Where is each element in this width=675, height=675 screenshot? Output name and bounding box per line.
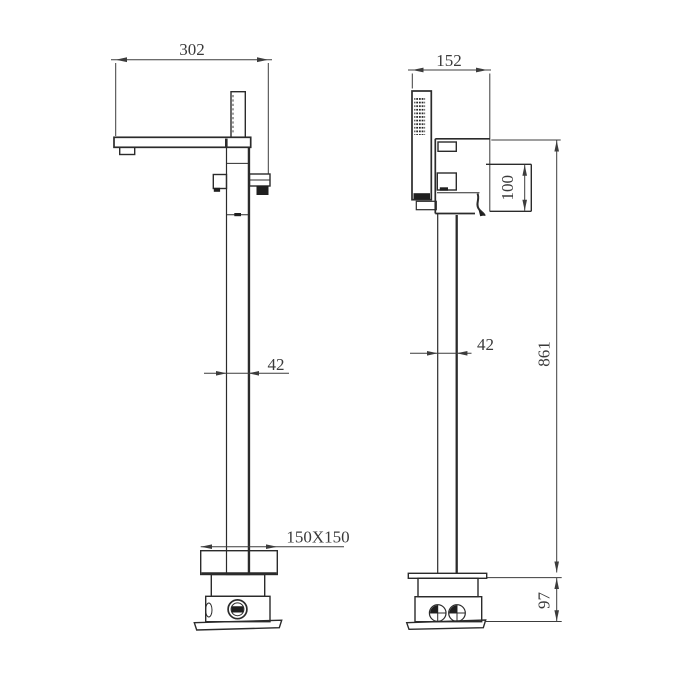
dim-152-arrow-left: [412, 68, 423, 73]
dim-label-spout-reach: 302: [179, 40, 205, 59]
front-view: 302 42 150X150: [111, 40, 350, 630]
dim-150-arrow-left: [201, 544, 212, 549]
dim-label-column-width-side: 42: [477, 335, 494, 354]
dim-861-arrow-top: [554, 141, 559, 152]
base-block-side: [418, 578, 478, 596]
diverter-button: [438, 142, 456, 151]
dim-150-arrow-right: [266, 544, 277, 549]
column-front: [227, 147, 250, 574]
handle-bracket: [213, 175, 226, 189]
handshower-grip-end: [414, 193, 431, 199]
dim-100-arrow-top: [522, 165, 527, 176]
spout-nozzle: [120, 147, 135, 154]
dim-label-base-plate: 150X150: [286, 528, 349, 547]
cover-plate-side: [408, 573, 486, 578]
handle-bracket-foot: [214, 188, 220, 192]
dim-42s-arrow-right: [457, 351, 468, 356]
base-housing-side: [415, 597, 482, 622]
handshower-holder-bracket: [416, 201, 436, 209]
dim-label-body-depth: 152: [436, 51, 462, 70]
technical-drawing-sheet: 302 42 150X150: [0, 0, 675, 675]
spout-bar: [114, 137, 251, 147]
escutcheon-box: [201, 551, 278, 575]
dim-152-arrow-right: [476, 68, 487, 73]
dim-42f-arrow-left: [216, 371, 227, 376]
dim-42s-arrow-left: [427, 351, 438, 356]
side-view: 152 100 42: [407, 51, 562, 629]
inlet-screw-left-sector: [430, 605, 438, 613]
base-block-front: [211, 575, 264, 597]
inlet-screw-right-sector: [449, 605, 457, 613]
faucet-dimension-drawing: 302 42 150X150: [0, 0, 675, 675]
dim-302-arrow-right: [257, 57, 268, 62]
dim-label-base-height: 97: [535, 592, 554, 610]
hose-outlet-knob: [257, 186, 269, 196]
dim-97-arrow-bottom: [554, 610, 559, 621]
dim-label-valve-height: 100: [498, 175, 517, 201]
housing-slot: [232, 606, 244, 612]
temperature-knob-tick: [440, 187, 448, 190]
dim-97-arrow-top: [554, 578, 559, 589]
column-joint-tick: [234, 213, 241, 216]
dim-100-arrow-bottom: [522, 200, 527, 211]
dim-label-column-width-front: 42: [268, 355, 285, 374]
handshower-spray-face: [414, 97, 425, 136]
dim-861-arrow-bottom: [554, 562, 559, 573]
dim-302-arrow-left: [116, 57, 127, 62]
dim-label-overall-height: 861: [535, 341, 554, 367]
housing-side-hole: [206, 603, 212, 617]
